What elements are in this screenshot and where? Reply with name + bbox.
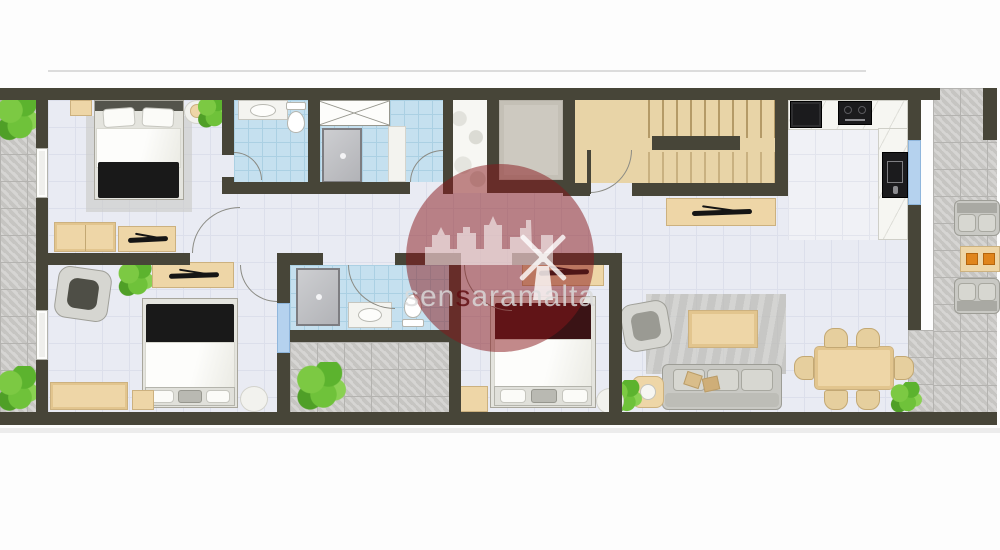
armchair-seat [630, 310, 662, 342]
cabinet [132, 390, 154, 410]
potted-plant [890, 382, 922, 414]
outer-wall-top-right [983, 88, 997, 140]
sofa-back [957, 203, 997, 213]
coffee-table [688, 310, 758, 348]
floor-plan: sensaramalta [0, 0, 1000, 550]
shower-enclosure [322, 128, 362, 183]
sofa-cushion [958, 214, 976, 232]
toilet-tank [286, 102, 306, 110]
window [36, 310, 48, 360]
bed-pillow [500, 389, 526, 403]
window [277, 303, 290, 353]
wall-between-bathrooms [308, 100, 320, 182]
potted-plant [296, 362, 346, 412]
nightstand [70, 100, 92, 116]
bathroom-pillar [388, 126, 406, 182]
outer-wall-top [0, 88, 940, 100]
toilet-bowl [287, 111, 305, 133]
wash-basin [358, 308, 382, 322]
outdoor-sofa [954, 278, 1000, 314]
wardrobe-divider [85, 225, 86, 251]
watermark-text-post: aramalta [471, 280, 596, 313]
sink-faucet [893, 186, 898, 194]
wardrobe [54, 222, 116, 252]
hob-burner [858, 106, 866, 114]
outdoor-table [960, 246, 1000, 272]
dining-chair [894, 356, 914, 380]
sofa-cushion [978, 283, 996, 301]
wall-ensuite-bottom [222, 182, 320, 194]
cooking-hob [838, 101, 872, 125]
page-rule-line [48, 70, 866, 72]
tv-sideboard [152, 262, 234, 288]
potted-plant [118, 260, 154, 298]
bed-pillow [206, 390, 230, 403]
living-sofa [662, 364, 782, 410]
kitchen-sink [882, 152, 908, 198]
wall-bedroom3-right [609, 253, 622, 412]
watermark-text-accent: s [455, 280, 471, 313]
orange-placemat [966, 253, 978, 265]
wall-ensuite-left-top [222, 100, 234, 155]
toilet-tank [402, 319, 424, 327]
window [36, 148, 48, 198]
bed-pillow [142, 107, 175, 128]
wall-stair-bottom-b [632, 183, 775, 196]
wall-bedroom1-bottom [36, 253, 190, 265]
door-leaf [587, 150, 591, 194]
dining-chair [856, 328, 880, 348]
sofa-cushion [958, 283, 976, 301]
hob-controls [845, 119, 865, 121]
sink-basin [887, 161, 903, 183]
orange-placemat [983, 253, 995, 265]
outdoor-sofa [954, 200, 1000, 236]
watermark-text-pre: sen [404, 280, 455, 313]
toilet [284, 102, 308, 134]
armchair-seat [66, 277, 100, 311]
living-armchair [618, 298, 674, 354]
wall-stair-right [775, 100, 788, 196]
sofa-cushion [741, 369, 773, 391]
window [908, 140, 921, 205]
ventilation-shaft [318, 100, 390, 126]
tv-dresser [118, 226, 176, 252]
dining-chair [794, 356, 814, 380]
hob-burner [844, 106, 852, 114]
wall-kitchen-right-bottom [908, 205, 921, 330]
bed-pillow [562, 389, 588, 403]
sofa-back [957, 301, 997, 311]
wall-bathroom3-bottom [290, 330, 452, 342]
bed-pillow [178, 390, 202, 403]
double-bed-2 [142, 298, 238, 408]
wall-bathroom2-bottom [320, 182, 410, 194]
outer-wall-bottom [0, 412, 997, 425]
watermark-text: sensaramalta [380, 280, 620, 314]
bed-pillow [531, 389, 557, 403]
wash-basin [250, 104, 276, 117]
stair-treads-lower [648, 152, 775, 183]
bed-blanket [98, 162, 179, 198]
hall-sideboard [666, 198, 776, 226]
wall-lift-stair [563, 100, 575, 193]
stair-landing-rail [652, 136, 740, 150]
dining-chair [856, 390, 880, 410]
dining-chair [824, 328, 848, 348]
shower-enclosure [296, 268, 340, 326]
dining-table [814, 346, 894, 390]
bedroom2-armchair [53, 264, 114, 323]
bed-pillow [102, 107, 135, 128]
round-rug [240, 386, 268, 412]
page-shadow-line [0, 428, 1000, 433]
sofa-cushion [978, 214, 996, 232]
bed-blanket [146, 304, 234, 346]
dining-chair [824, 390, 848, 410]
wall-kitchen-right-top [908, 100, 921, 140]
nightstand [460, 386, 488, 412]
stair-treads-upper [648, 100, 775, 138]
bed-duvet [145, 342, 235, 388]
fridge [790, 101, 822, 128]
double-bed-1 [94, 100, 184, 200]
wardrobe [50, 382, 128, 410]
vanity-counter [238, 100, 288, 120]
terrace-plant [0, 366, 38, 414]
sofa-back [665, 393, 779, 407]
table-lamp [640, 384, 656, 400]
